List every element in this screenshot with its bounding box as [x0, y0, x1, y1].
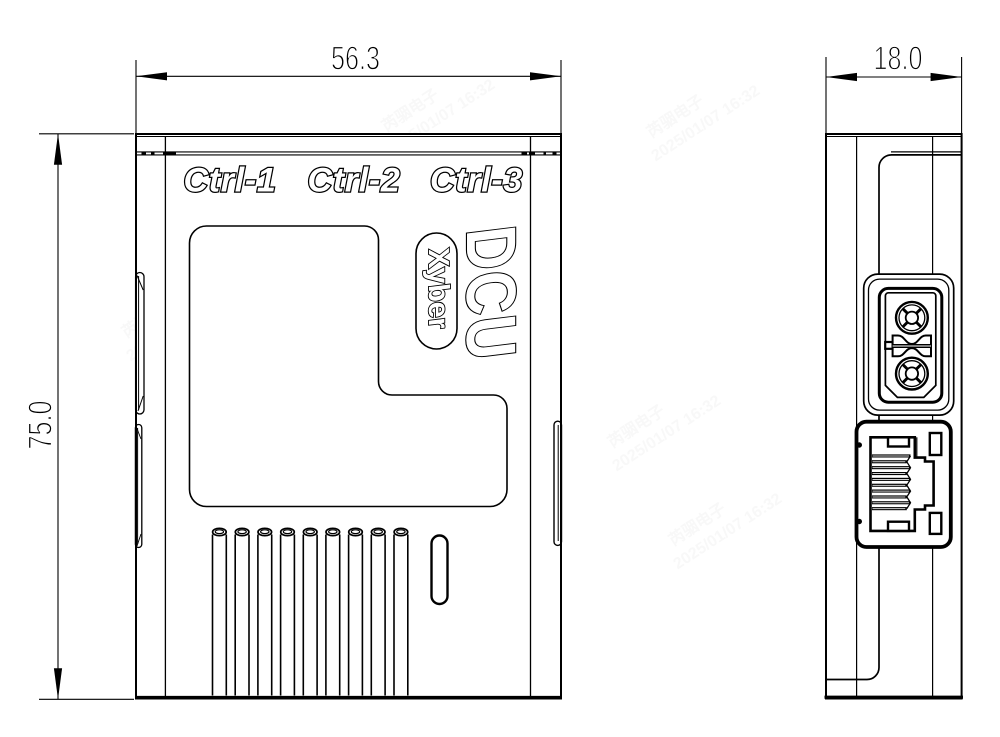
svg-text:Ctrl-1: Ctrl-1 [184, 162, 277, 200]
svg-text:DCU: DCU [452, 222, 530, 366]
svg-text:56.3: 56.3 [331, 40, 380, 77]
svg-text:Ctrl-2: Ctrl-2 [308, 162, 401, 200]
svg-text:Ctrl-3: Ctrl-3 [430, 162, 523, 200]
svg-text:75.0: 75.0 [22, 401, 59, 450]
svg-text:Xyber: Xyber [422, 246, 454, 330]
svg-text:18.0: 18.0 [874, 40, 923, 77]
